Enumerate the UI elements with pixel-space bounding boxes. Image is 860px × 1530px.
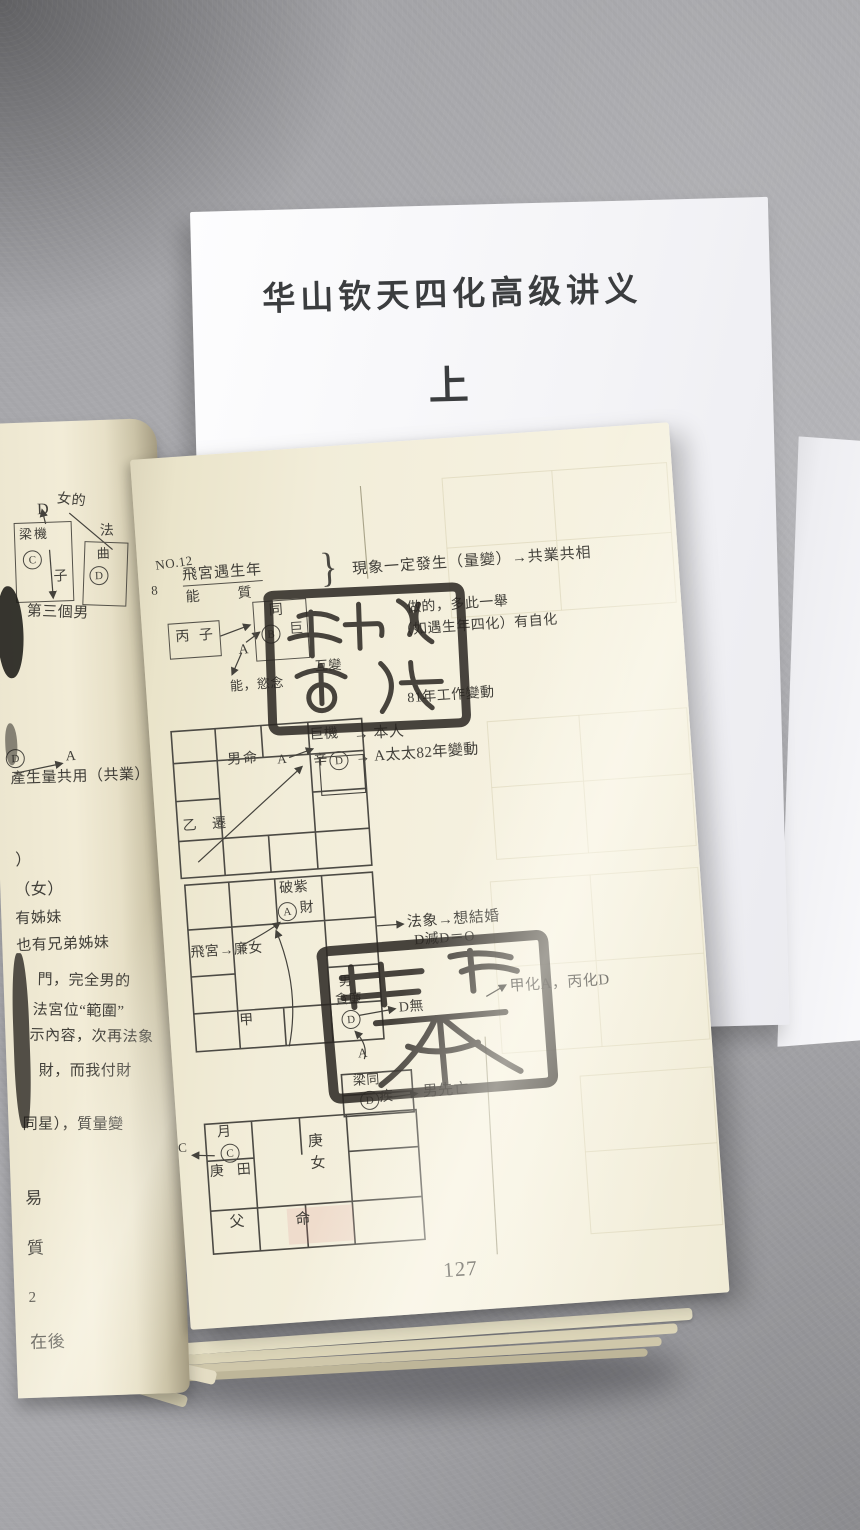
note-line: 做的，多此一舉 xyxy=(407,594,509,618)
star-ju: 巨 xyxy=(289,621,305,639)
stem-branch-label: 丙 子 xyxy=(175,627,217,647)
box-stars: 梁機 xyxy=(19,526,50,543)
cell-nan: 男 xyxy=(338,973,353,989)
cover-volume: 上 xyxy=(194,345,773,418)
text-line: 也有兄弟姊妹 xyxy=(16,934,110,955)
circle-d: D xyxy=(360,1090,380,1110)
d-marker: D xyxy=(37,500,50,520)
text-line: 易 xyxy=(25,1188,43,1209)
desire-label: 能，慾念 xyxy=(229,675,284,694)
annotation-djiand: D減D＝O xyxy=(414,929,476,950)
annotation-death: 男先亡 xyxy=(422,1080,470,1101)
cell-ming: 命 xyxy=(295,1210,312,1229)
cell-fu: 父 xyxy=(229,1213,246,1232)
cell-pozi: 破紫 xyxy=(279,880,309,899)
c-out-marker: C xyxy=(178,1140,188,1156)
topic-term: 飛宮遇生年 xyxy=(182,561,263,587)
ink-mark xyxy=(5,723,18,765)
topic-sub-left: 能 xyxy=(185,589,201,607)
a-marker: A xyxy=(66,749,77,766)
circle-c: C xyxy=(220,1143,240,1163)
cell-yue: 月 xyxy=(217,1125,233,1143)
center-nv: 女 xyxy=(310,1154,327,1173)
palace-grid-2 xyxy=(185,863,510,1070)
text-line: 財，而我付財 xyxy=(39,1062,132,1080)
item-number: 8 xyxy=(151,582,159,598)
text-line: 有姊妹 xyxy=(15,909,62,929)
stem-geng: 庚 xyxy=(209,1164,225,1182)
circle-d: D xyxy=(341,1009,361,1029)
stem-jia: 甲 xyxy=(239,1013,255,1031)
cell-male-life: 男命 xyxy=(227,751,260,770)
brace: } xyxy=(318,543,339,594)
text-line: 法宮位“範圍” xyxy=(33,1001,125,1021)
cover-title: 华山钦天四化高级讲义 xyxy=(192,259,771,322)
text-line: ） xyxy=(15,851,32,871)
text-line: 產生量共用（共業） xyxy=(10,765,150,788)
page-number: 127 xyxy=(442,1256,478,1284)
a-marker: A xyxy=(238,642,250,659)
annotation-jiahua: 甲化A，丙化D xyxy=(509,971,610,996)
photo-scene: 华山钦天四化高级讲义 上 D 女的 法 梁機 C 子 曲 D xyxy=(0,0,860,1530)
a-marker: A xyxy=(277,751,288,767)
cell-tian: 田 xyxy=(236,1162,252,1180)
text-line: （女） xyxy=(14,880,64,901)
box2-star: 曲 xyxy=(96,546,110,562)
a-marker: A xyxy=(357,1045,368,1061)
center-geng: 庚 xyxy=(307,1132,324,1151)
ink-mark xyxy=(11,953,33,1128)
text-line: 2 xyxy=(28,1289,37,1307)
circle-d: D xyxy=(329,751,349,771)
mutual-label: 互變 xyxy=(314,657,342,674)
fa-label: 法 xyxy=(100,524,115,541)
note-line: 81年工作變動 xyxy=(407,685,495,708)
annotation-faxiang: 法象→想結婚 xyxy=(406,907,500,931)
annotation-wife: → A太太82年變動 xyxy=(355,740,480,767)
cell-yi-qian: 乙 遷 xyxy=(182,816,233,836)
statement-line: 現象一定發生（量變）→共業共相 xyxy=(352,544,593,579)
caption-third-son: 第三個男 xyxy=(26,602,89,622)
annotation-person: → 本人 xyxy=(353,723,405,744)
cell-fly-palace: 飛宮→廉女 xyxy=(190,941,263,963)
text-line: 質 xyxy=(27,1238,45,1259)
box-branch: 子 xyxy=(53,569,68,586)
cell-tanlian: 貪廉 xyxy=(335,990,363,1007)
palace-grid-1 xyxy=(171,718,372,878)
stem-xin: 辛 xyxy=(313,753,329,771)
cell-liangtong: 梁同 xyxy=(352,1071,380,1088)
cell-ji: 疾 xyxy=(379,1089,395,1107)
star-tong: 同 xyxy=(268,603,284,621)
topic-sub-right: 質 xyxy=(237,586,253,604)
text-line: 在後 xyxy=(30,1332,66,1354)
text-line: 門，完全男的 xyxy=(37,971,130,991)
circle-a: A xyxy=(277,901,297,921)
cell-cai: 財 xyxy=(299,900,315,918)
text-line: 同星），質量變 xyxy=(23,1115,124,1133)
right-page: NO.12 8 飛宮遇生年 能 質 } 現象一定發生（量變）→共業共相 丙 子 … xyxy=(130,422,730,1330)
female-label: 女的 xyxy=(56,492,87,512)
text-line: 示內容，次再法象 xyxy=(29,1027,153,1047)
annotation-dwu: D無 xyxy=(398,999,424,1018)
cell-juji: 巨機 xyxy=(309,726,339,745)
